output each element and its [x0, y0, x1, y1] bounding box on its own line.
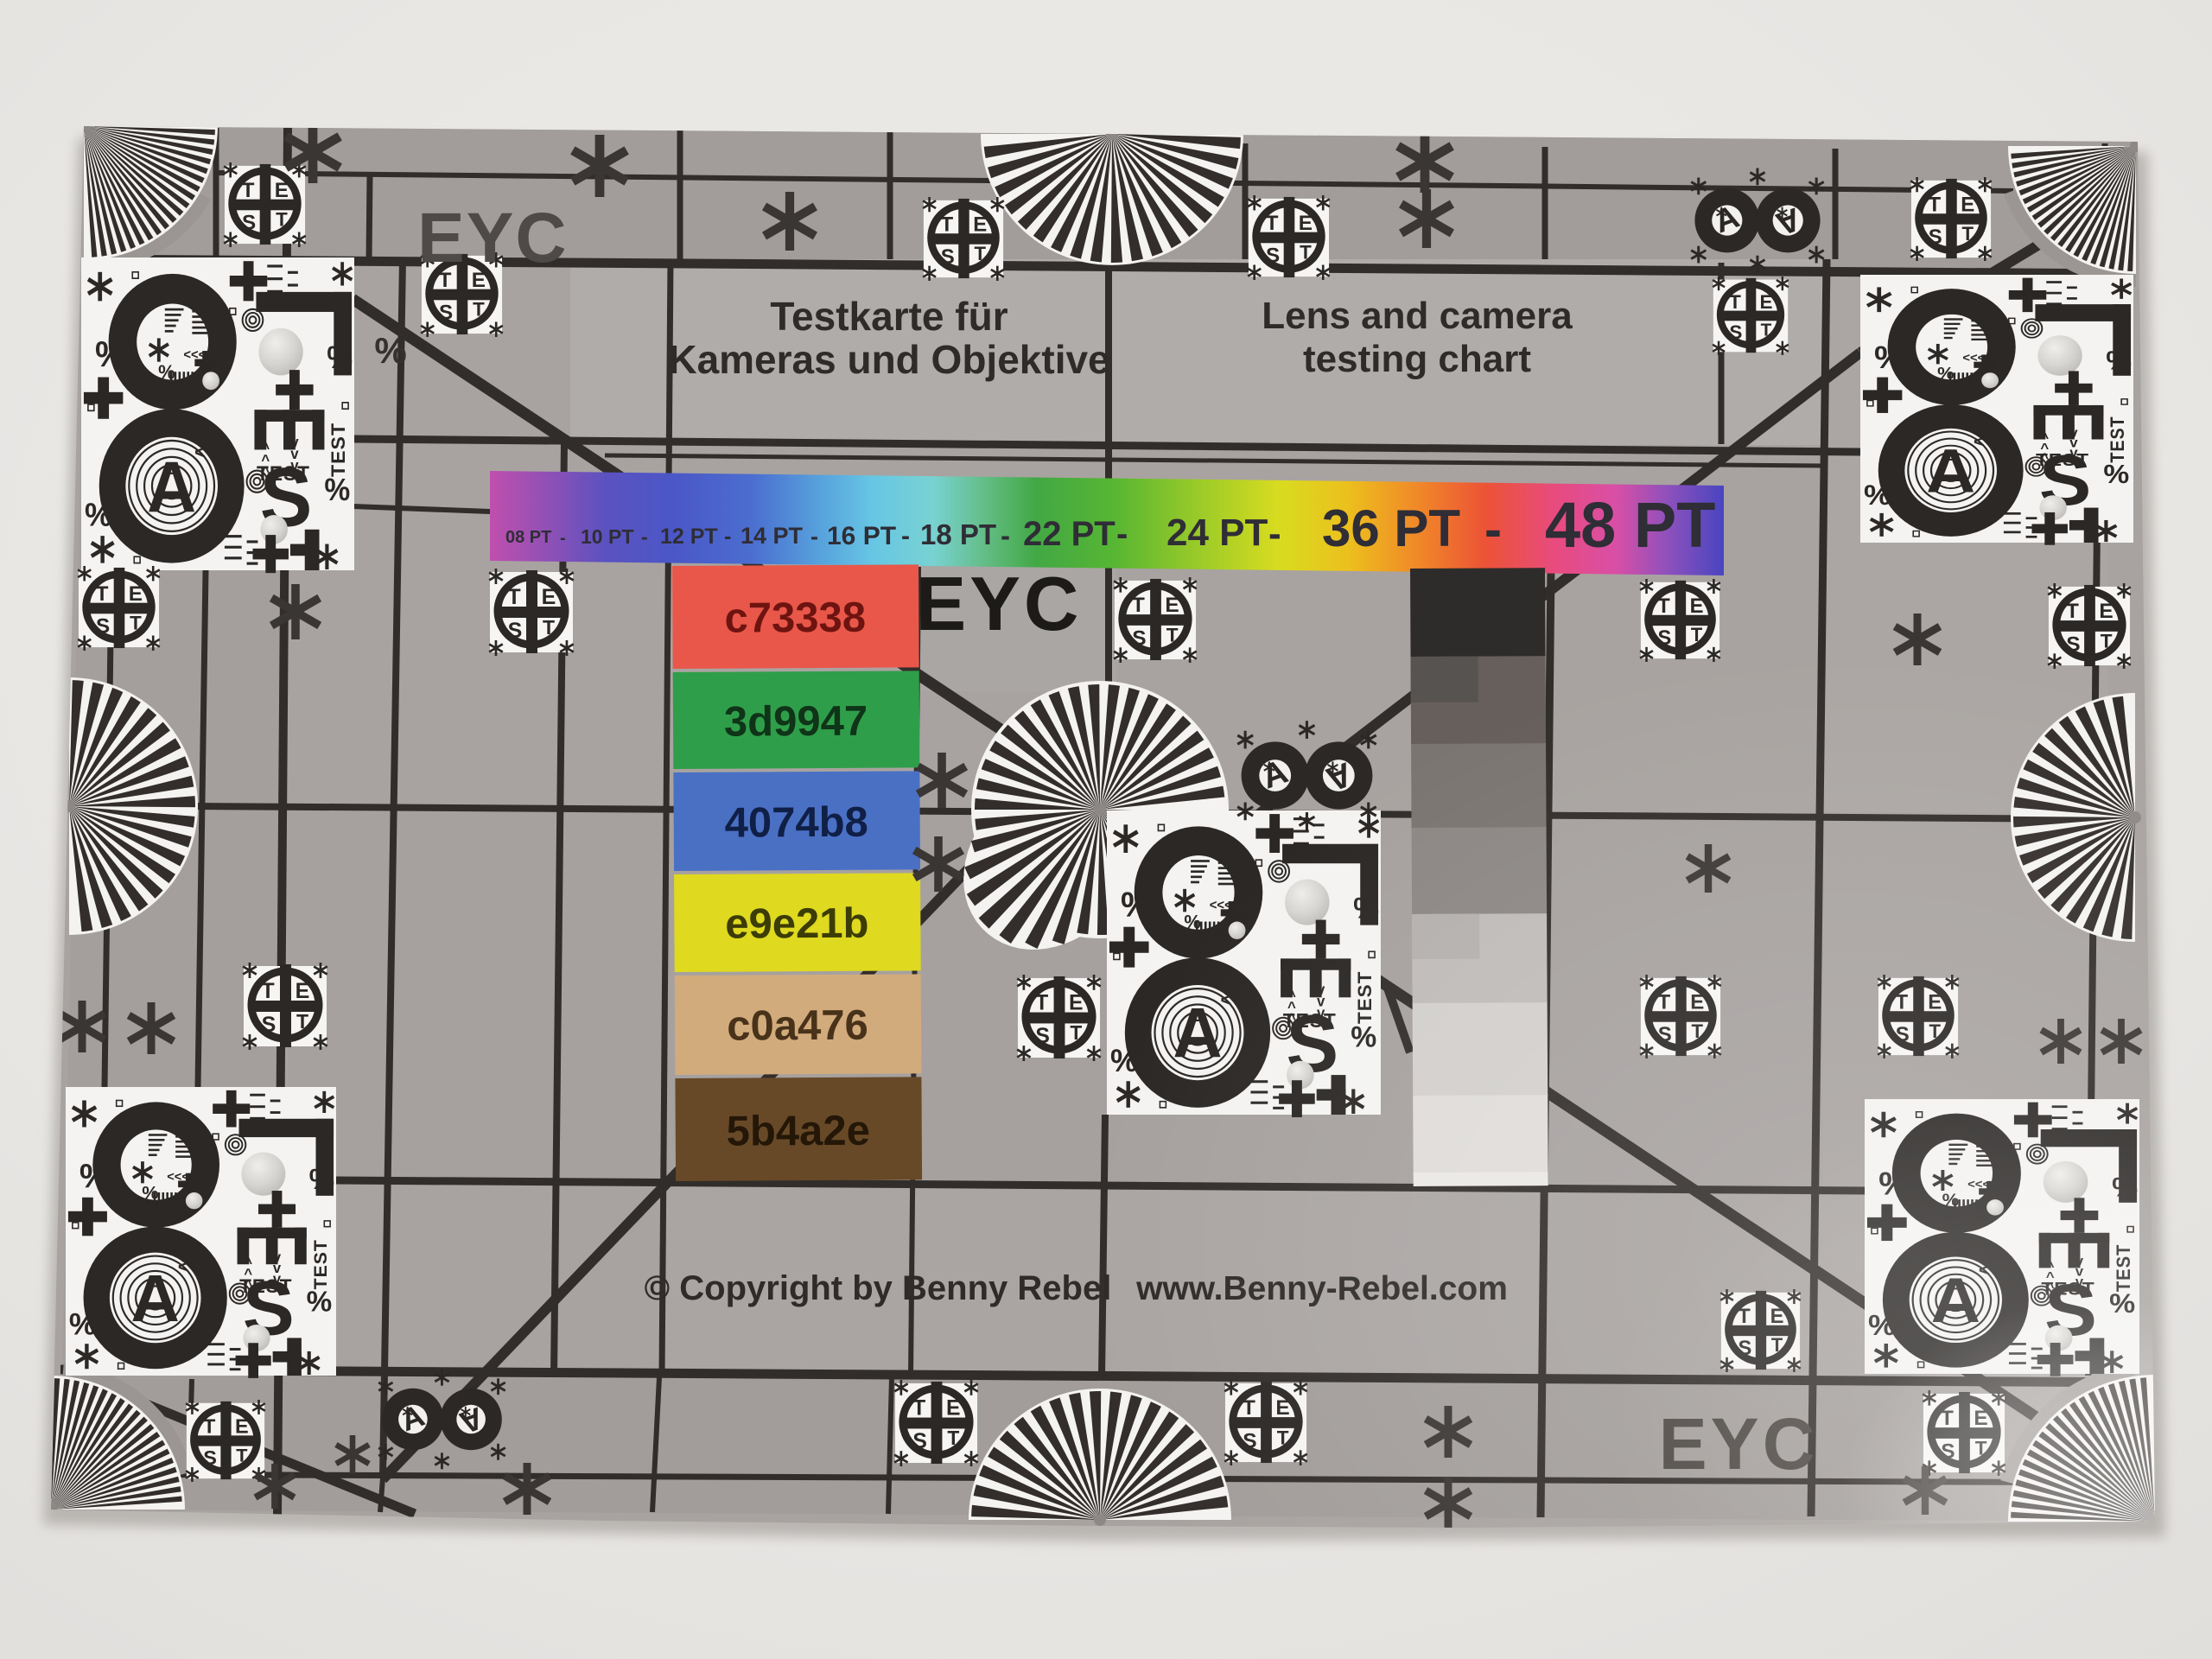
svg-text:-: -	[560, 529, 566, 548]
svg-text:e9e21b: e9e21b	[725, 900, 869, 948]
svg-text:-: -	[1268, 512, 1281, 555]
svg-text:-: -	[1001, 519, 1010, 551]
svg-text:-: -	[810, 524, 818, 550]
svg-text:c0a476: c0a476	[727, 1002, 868, 1050]
svg-text:-: -	[641, 525, 648, 548]
svg-text:Testkarte für: Testkarte für	[770, 294, 1007, 339]
svg-text:36 PT: 36 PT	[1322, 499, 1460, 557]
svg-text:22 PT: 22 PT	[1023, 515, 1116, 553]
svg-text:18 PT: 18 PT	[920, 518, 996, 550]
svg-text:16 PT: 16 PT	[827, 522, 896, 550]
svg-text:Lens and camera: Lens and camera	[1262, 295, 1573, 337]
svg-text:%: %	[374, 330, 406, 371]
svg-text:testing chart: testing chart	[1303, 338, 1531, 380]
svg-text:3d9947: 3d9947	[724, 698, 868, 746]
svg-text:08 PT: 08 PT	[505, 528, 551, 547]
svg-text:12 PT: 12 PT	[660, 524, 718, 549]
svg-text:-: -	[1484, 500, 1502, 558]
svg-text:EYC: EYC	[916, 561, 1083, 646]
svg-text:c73338: c73338	[724, 594, 866, 642]
svg-text:-: -	[1116, 515, 1128, 553]
svg-text:© Copyright by Benny Rebel: © Copyright by Benny Rebel	[645, 1269, 1112, 1307]
svg-text:24 PT: 24 PT	[1166, 512, 1268, 554]
svg-text:14 PT: 14 PT	[741, 523, 804, 549]
svg-text:4074b8: 4074b8	[724, 799, 868, 847]
svg-text:-: -	[724, 524, 731, 549]
svg-text:EYC: EYC	[417, 199, 569, 277]
svg-text:10 PT: 10 PT	[581, 525, 633, 548]
svg-text:-: -	[901, 522, 910, 550]
svg-text:5b4a2e: 5b4a2e	[727, 1108, 871, 1155]
svg-text:48 PT: 48 PT	[1545, 489, 1715, 561]
svg-text:Kameras und Objektive: Kameras und Objektive	[668, 337, 1109, 382]
